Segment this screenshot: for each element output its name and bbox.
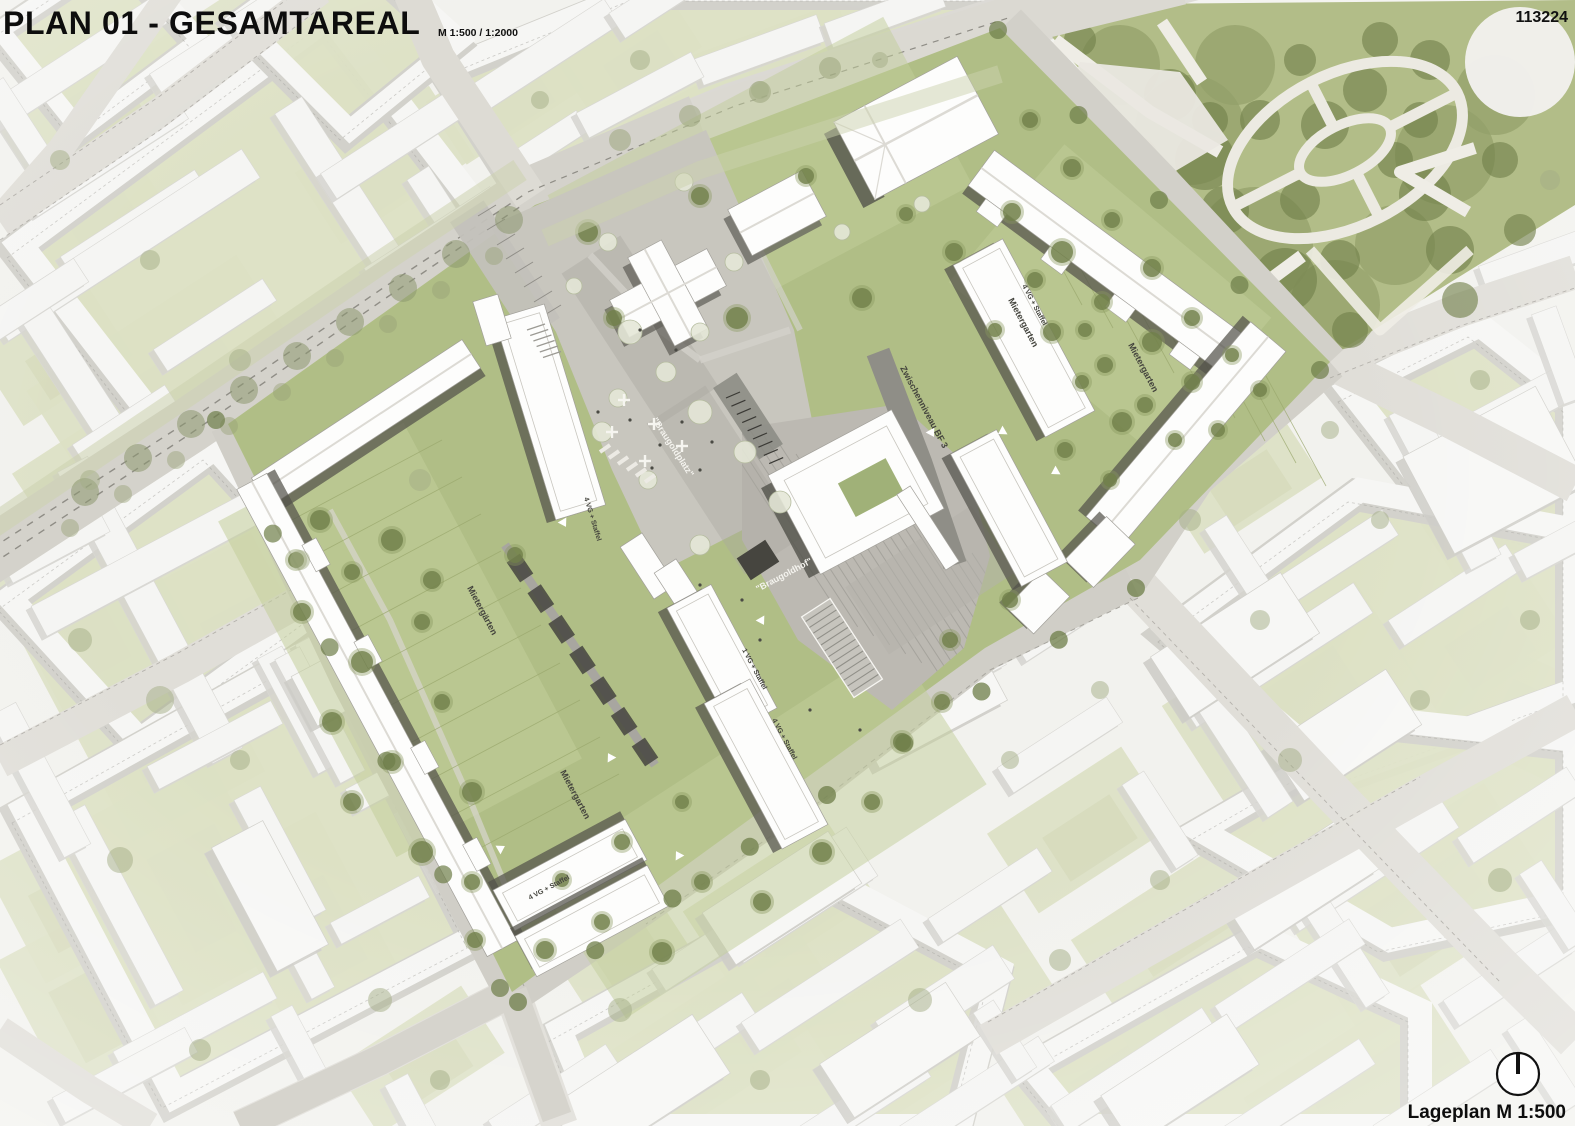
svg-text:Lageplan M 1:500: Lageplan M 1:500 bbox=[1408, 1102, 1566, 1123]
svg-text:113224: 113224 bbox=[1515, 9, 1568, 26]
svg-text:M 1:500 / 1:2000: M 1:500 / 1:2000 bbox=[438, 27, 518, 39]
svg-text:PLAN 01 - GESAMTAREAL: PLAN 01 - GESAMTAREAL bbox=[3, 5, 420, 41]
